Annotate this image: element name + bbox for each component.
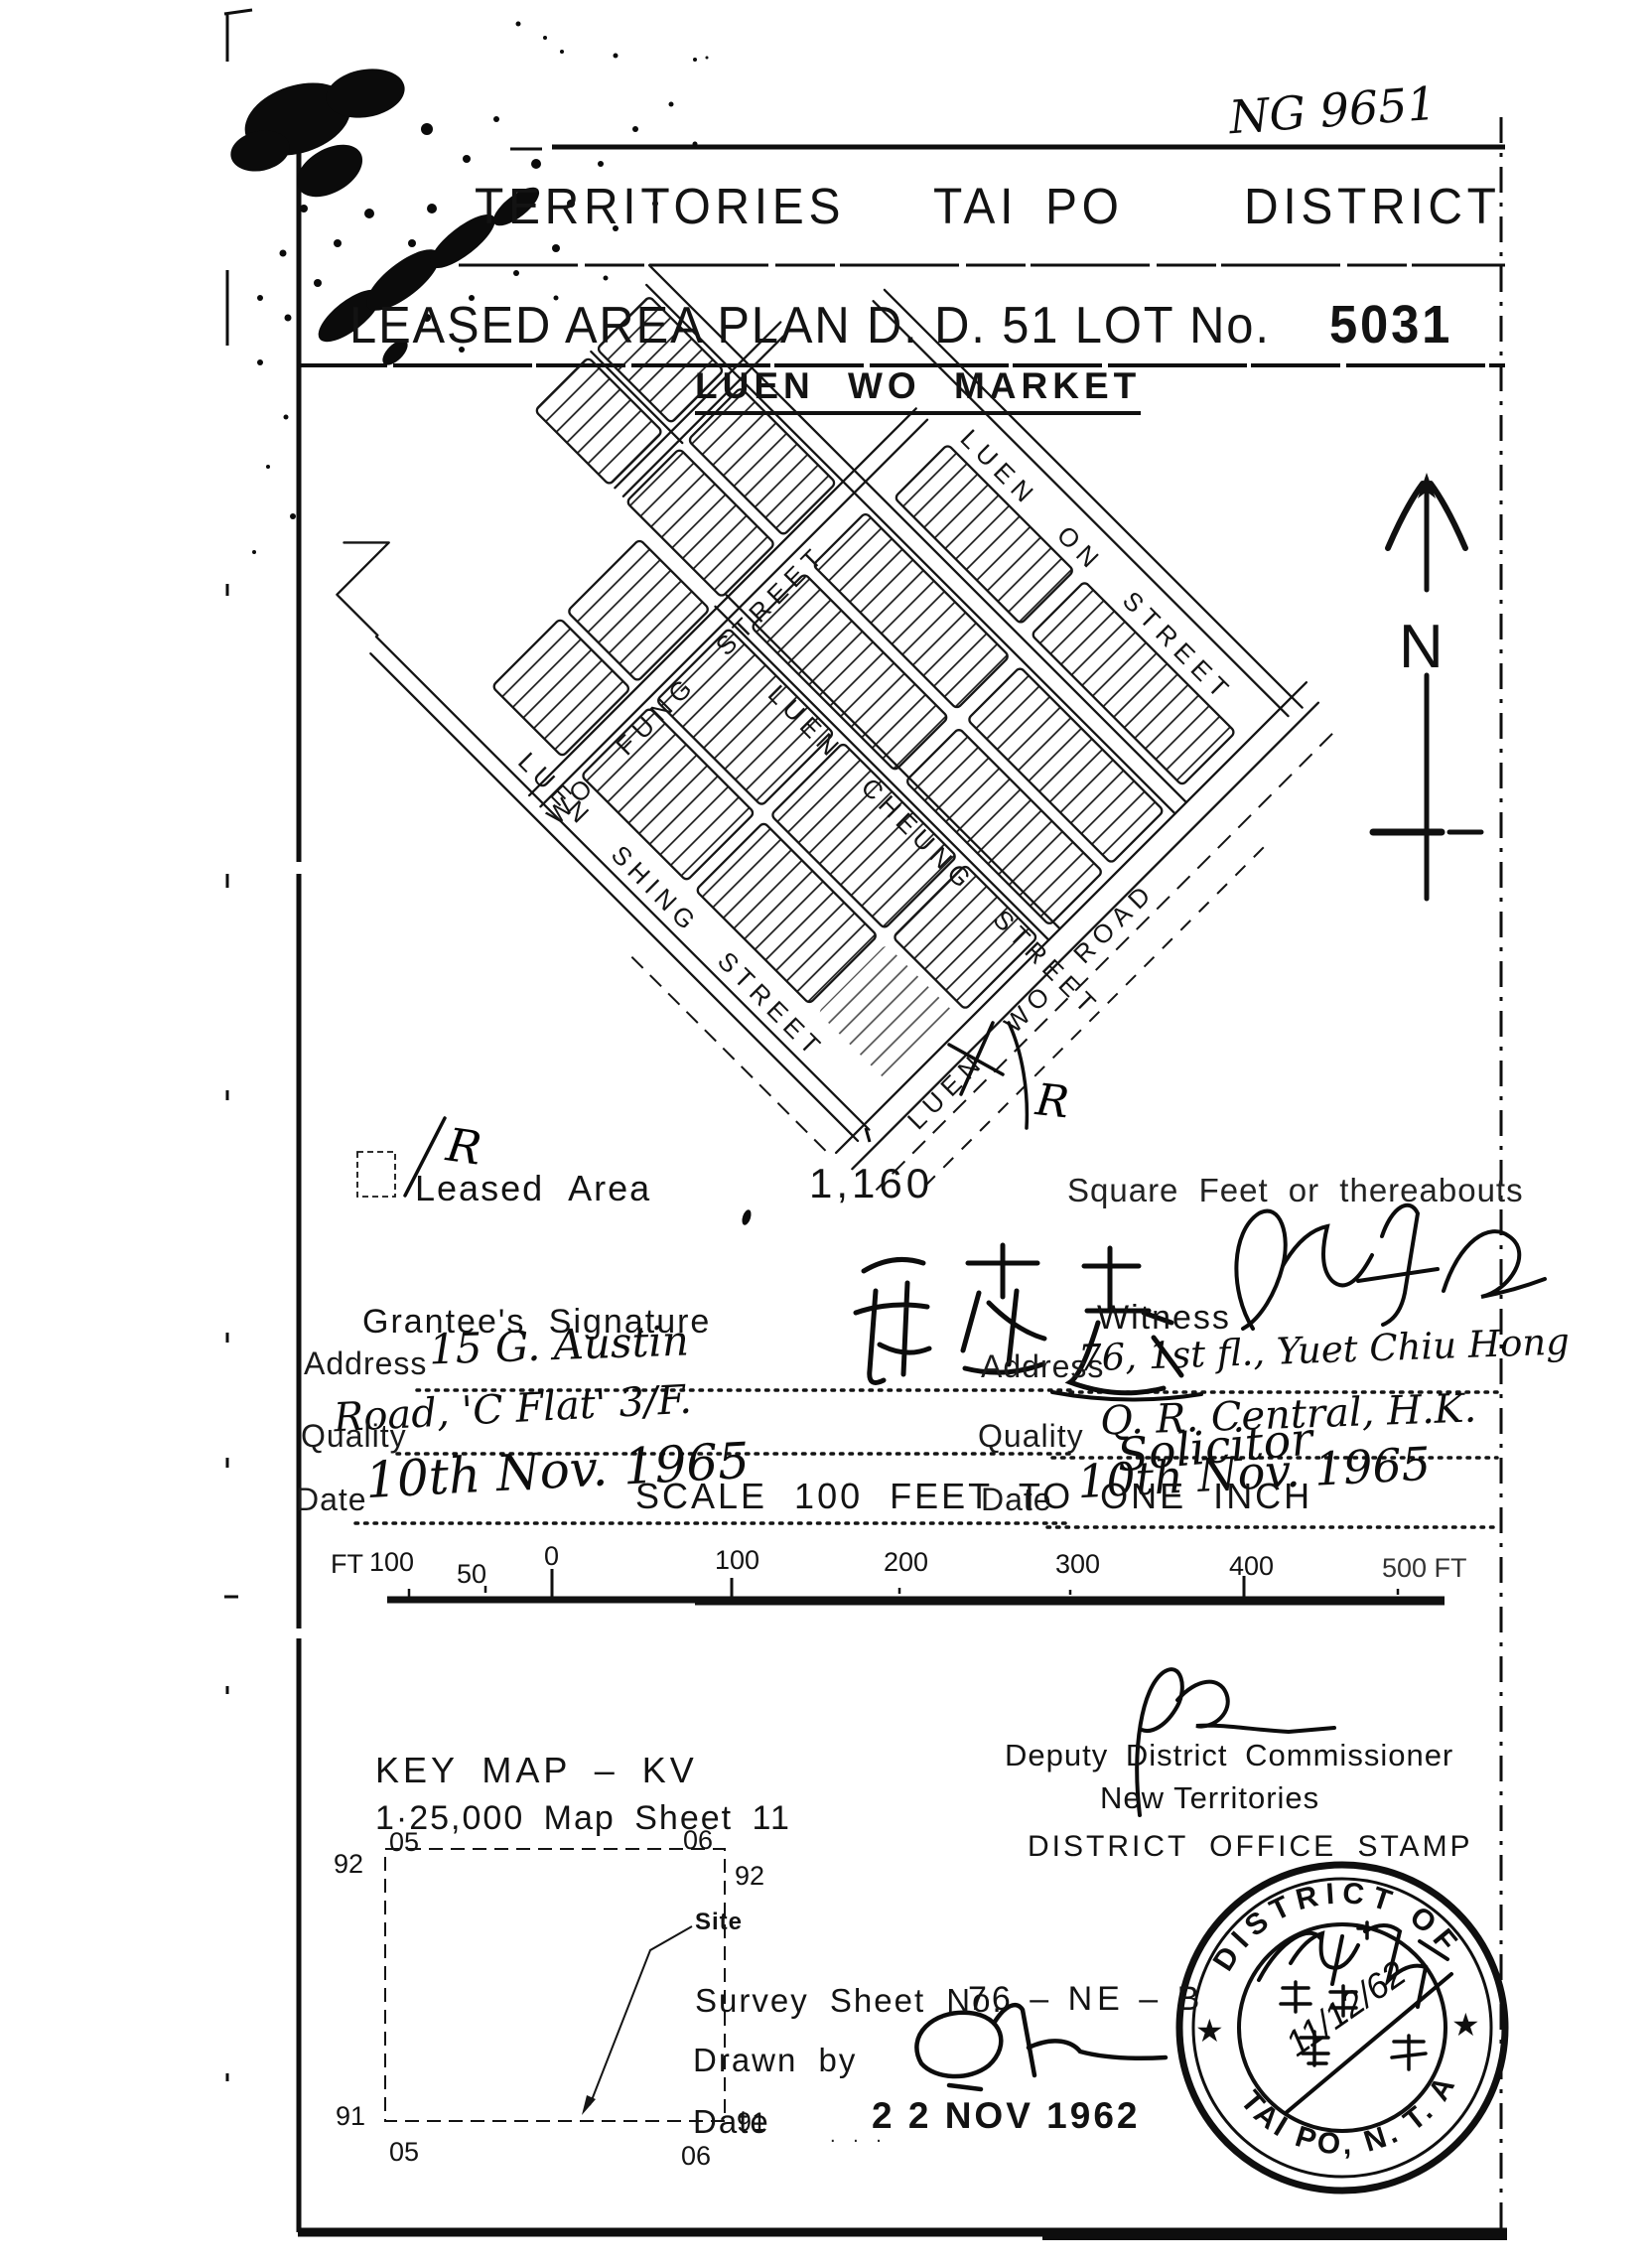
- approval-title-2: New Territories: [1100, 1780, 1319, 1816]
- grid-label-05-top: 05: [389, 1827, 419, 1858]
- title-word-po: PO: [1045, 177, 1124, 235]
- grid-label-92-right: 92: [735, 1861, 764, 1892]
- survey-sheet-label: Survey Sheet No.: [695, 1982, 1004, 2020]
- scale-label-400: 400: [1229, 1551, 1274, 1582]
- scale-label-0: 0: [544, 1541, 559, 1572]
- scanned-lease-plan-document: LUEN ON STREET WO FUNG STREET LUEN CHEUN…: [0, 0, 1652, 2266]
- north-arrow-icon: N: [1373, 473, 1481, 899]
- title-word-tai: TAI: [933, 177, 1018, 235]
- grid-label-05-bottom: 05: [389, 2137, 419, 2168]
- scale-label-200: 200: [884, 1547, 928, 1578]
- stamp-hand-date: 11/12/62: [1278, 1952, 1413, 2063]
- scale-title: SCALE 100 FEET TO ONE INCH: [635, 1476, 1312, 1517]
- approval-title-1: Deputy District Commissioner: [1005, 1738, 1453, 1773]
- grantee-address-label: Address: [304, 1345, 427, 1382]
- scale-label-500ft: 500 FT: [1382, 1553, 1467, 1584]
- key-map-sheet: 1·25,000 Map Sheet 11: [375, 1799, 791, 1838]
- scale-label-100: 100: [715, 1545, 759, 1576]
- scale-label-300: 300: [1055, 1549, 1100, 1580]
- grantee-date-label: Date: [296, 1482, 367, 1518]
- grid-label-06-top: 06: [683, 1825, 713, 1856]
- key-map-title: KEY MAP – KV: [375, 1750, 698, 1791]
- survey-date-label: Date: [693, 2103, 770, 2141]
- title-lot-number: 5031: [1329, 294, 1452, 355]
- survey-sheet-number: 76 – NE – B: [968, 1980, 1204, 2019]
- grid-label-91-left: 91: [336, 2101, 365, 2132]
- title-word-district: DISTRICT: [1244, 177, 1501, 235]
- witness-signature: [1236, 1205, 1545, 1329]
- witness-quality-label: Quality: [978, 1418, 1084, 1455]
- survey-drawn-by-label: Drawn by: [693, 2042, 857, 2079]
- legend-area-units: Square Feet or thereabouts: [1067, 1172, 1524, 1209]
- survey-date-stamp: 2 2 NOV 1962: [872, 2095, 1140, 2137]
- key-map-figure: [385, 1849, 725, 2121]
- legend-hand-mark-r: R: [442, 1117, 484, 1175]
- approval-stamp-caption: DISTRICT OFFICE STAMP: [1028, 1830, 1473, 1864]
- scale-label-50: 50: [457, 1559, 486, 1590]
- grantee-address-hand-1: 15 G. Austin: [428, 1316, 689, 1373]
- title-line2: LEASED AREA PLAN D. D. 51 LOT No.: [349, 296, 1271, 355]
- stamp-star-right-icon: ★: [1451, 2007, 1480, 2043]
- grantee-quality-label: Quality: [301, 1418, 407, 1455]
- map-hand-mark-r: R: [1032, 1074, 1071, 1128]
- north-label: N: [1399, 613, 1444, 681]
- grid-label-92-left: 92: [334, 1849, 363, 1880]
- scale-label-ft: FT: [331, 1549, 363, 1580]
- title-word-territories: TERRITORIES: [475, 177, 845, 235]
- scale-label-100l: 100: [369, 1547, 414, 1578]
- key-map-site-label: Site: [695, 1909, 743, 1936]
- legend-area-value: 1,160: [809, 1160, 933, 1207]
- grid-label-06-bottom: 06: [681, 2141, 711, 2172]
- page-subtitle: LUEN WO MARKET: [695, 365, 1141, 415]
- legend-label: Leased Area: [415, 1168, 651, 1209]
